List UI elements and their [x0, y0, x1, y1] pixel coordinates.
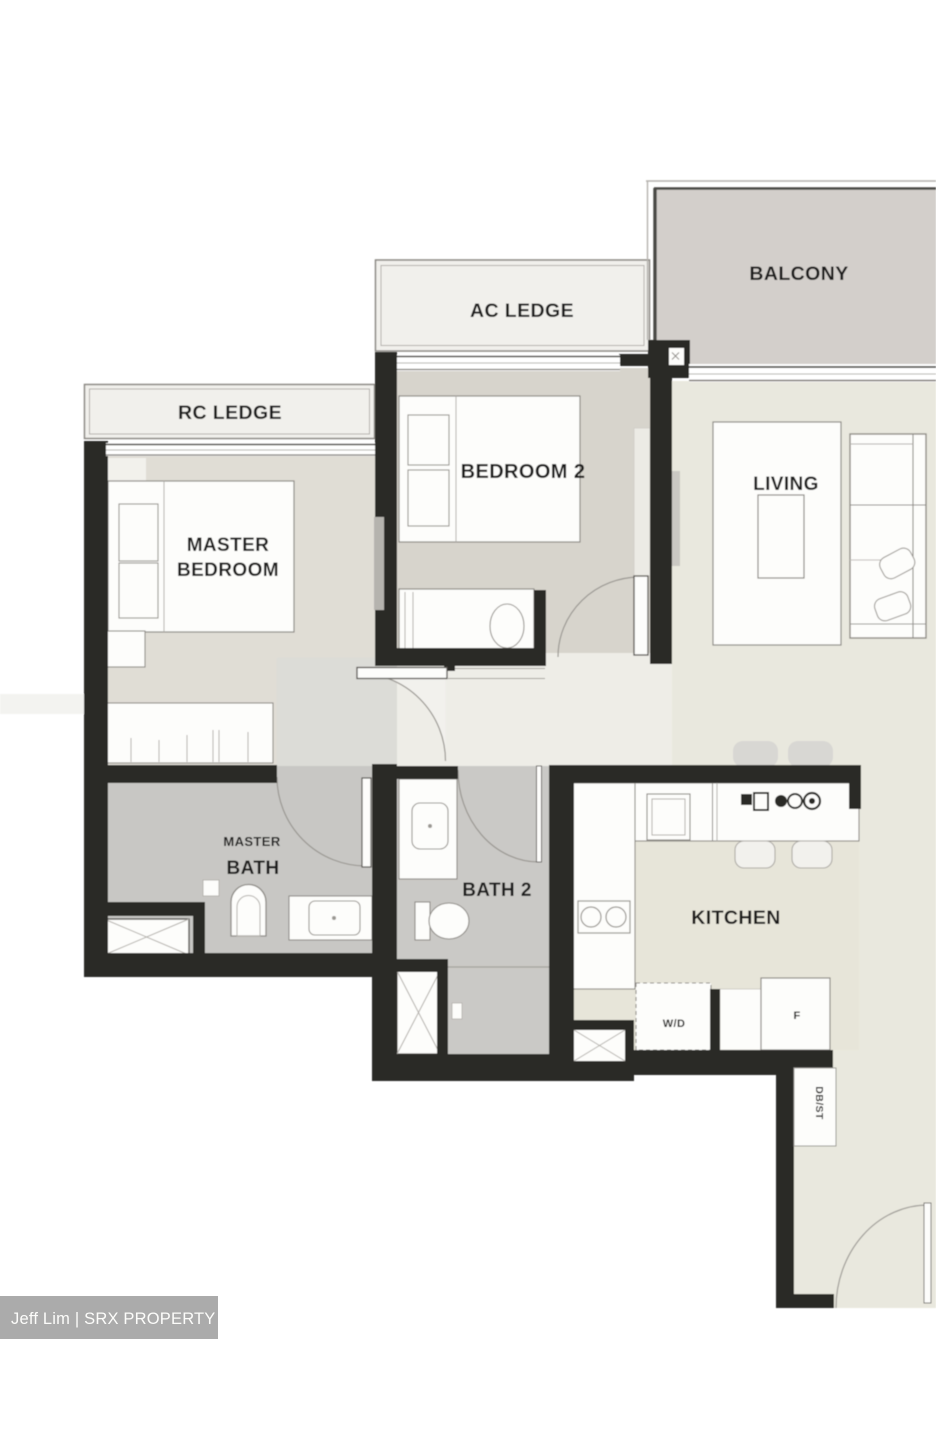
- svg-text:BEDROOM: BEDROOM: [177, 560, 279, 581]
- svg-text:MASTER: MASTER: [223, 834, 280, 849]
- svg-text:F: F: [793, 1010, 800, 1022]
- svg-text:W/D: W/D: [663, 1018, 686, 1030]
- svg-text:BATH: BATH: [227, 858, 280, 879]
- svg-text:BEDROOM 2: BEDROOM 2: [461, 461, 586, 483]
- svg-text:LIVING: LIVING: [753, 474, 819, 495]
- svg-text:BALCONY: BALCONY: [749, 263, 848, 285]
- svg-text:DB/ST: DB/ST: [813, 1086, 825, 1120]
- svg-text:BATH 2: BATH 2: [462, 880, 532, 901]
- svg-text:MASTER: MASTER: [187, 535, 270, 556]
- svg-text:AC LEDGE: AC LEDGE: [470, 300, 574, 322]
- svg-text:RC LEDGE: RC LEDGE: [178, 402, 282, 424]
- svg-text:Jeff Lim | SRX PROPERTY: Jeff Lim | SRX PROPERTY: [11, 1310, 216, 1328]
- svg-text:KITCHEN: KITCHEN: [691, 907, 780, 929]
